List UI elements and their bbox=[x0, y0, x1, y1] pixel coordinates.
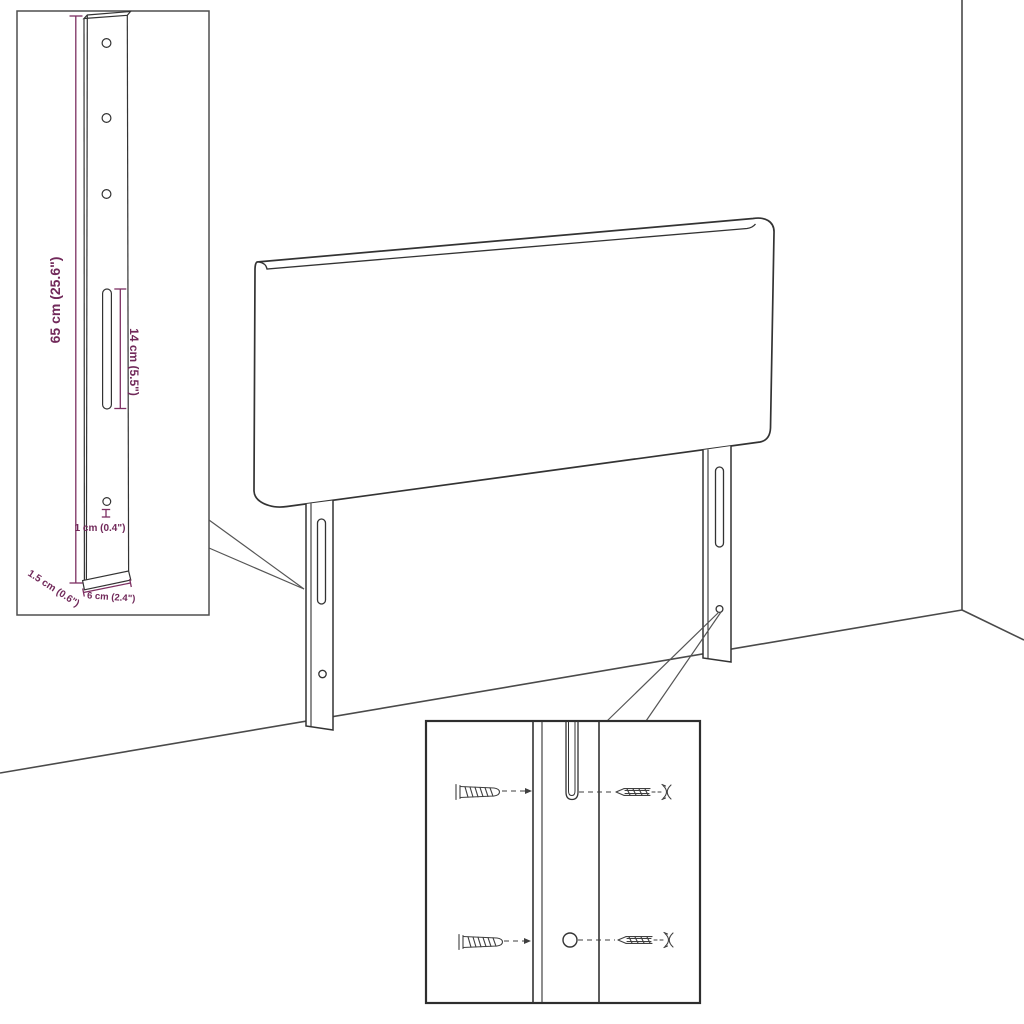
floor-line-right bbox=[962, 610, 1024, 640]
product-dimension-image: 65 cm (25.6") 14 cm (5.5") 1 cm (0.4") 1… bbox=[0, 0, 1024, 1024]
headboard-panel bbox=[254, 218, 774, 507]
left-leg bbox=[306, 501, 333, 731]
headboard-outline bbox=[254, 218, 774, 507]
right-leg bbox=[703, 446, 731, 662]
slot-length-label: 14 cm (5.5") bbox=[127, 328, 141, 396]
leg-dimension-inset: 65 cm (25.6") 14 cm (5.5") 1 cm (0.4") 1… bbox=[17, 11, 209, 615]
diagram-canvas: 65 cm (25.6") 14 cm (5.5") 1 cm (0.4") 1… bbox=[0, 0, 1024, 1024]
leader-line bbox=[646, 612, 721, 721]
mounting-detail-inset bbox=[426, 721, 700, 1003]
leg-inset-leader-lines bbox=[209, 520, 304, 589]
inset-border bbox=[426, 721, 700, 1003]
leg-height-label: 65 cm (25.6") bbox=[47, 257, 63, 344]
left-leg-slot bbox=[318, 519, 326, 604]
left-leg-hole bbox=[319, 670, 326, 677]
right-leg-hole bbox=[716, 606, 723, 613]
hole-diameter-label: 1 cm (0.4") bbox=[75, 523, 126, 534]
right-leg-slot bbox=[716, 467, 724, 547]
